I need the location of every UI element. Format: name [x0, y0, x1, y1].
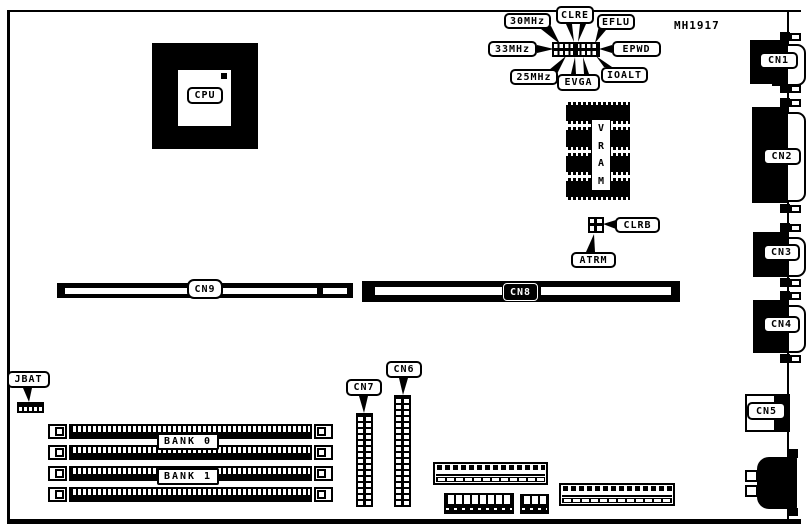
cn3-tab-top-outer — [790, 224, 801, 232]
cn1-tab-top-outer — [790, 33, 801, 41]
io-connector-pins — [562, 486, 672, 497]
connector-label-cn5: CN5 — [747, 402, 786, 420]
pin-header-cn6 — [394, 395, 411, 507]
jumper-label-clrb: CLRB — [615, 217, 660, 233]
simm-clip — [48, 487, 67, 502]
simm-slot-4 — [48, 487, 333, 502]
jbat-jumper-block — [17, 402, 44, 413]
cn3-tab-bottom — [780, 278, 790, 287]
vram-letter: R — [598, 141, 604, 152]
jumper-label-30mhz: 30MHz — [504, 13, 551, 29]
io-connector-pins — [436, 465, 545, 476]
jumper-label-ioalt: IOALT — [601, 67, 648, 83]
io-connector-teeth — [522, 496, 547, 505]
slot-cn9-channel-short — [323, 288, 347, 294]
cn2-tab-top — [780, 98, 790, 107]
simm-clip — [314, 466, 333, 481]
cn3-tab-bottom-outer — [790, 279, 801, 287]
cn3-tab-top — [780, 223, 790, 232]
jumper-label-25mhz: 25MHz — [510, 69, 558, 85]
simm-clip — [48, 424, 67, 439]
io-connector-b — [444, 493, 514, 514]
connector-label-cn3: CN3 — [763, 244, 800, 261]
jumper-label-atrm: ATRM — [571, 252, 616, 268]
jumper-label-jbat: JBAT — [7, 371, 50, 388]
simm-clip — [314, 445, 333, 460]
bank1-label: BANK 1 — [157, 468, 219, 485]
io-connector-bar — [446, 505, 512, 513]
simm-socket — [69, 487, 312, 502]
pin-header-cn7 — [356, 413, 373, 507]
io-connector-sockets — [562, 498, 672, 503]
simm-clip — [48, 445, 67, 460]
simm-clip — [314, 424, 333, 439]
clrb-jumper-block — [588, 217, 604, 233]
cn4-tab-bottom-outer — [790, 355, 801, 363]
header-label-cn6: CN6 — [386, 361, 422, 378]
clock-jumper-block — [552, 42, 600, 57]
slot-label-cn8: CN8 — [503, 283, 538, 301]
board-edge-bottom — [7, 519, 801, 524]
cn2-tab-top-outer — [790, 99, 801, 107]
jumper-label-epwd: EPWD — [612, 41, 661, 57]
jumper-label-clre: CLRE — [556, 6, 594, 24]
jumper-label-eflu: EFLU — [597, 14, 635, 30]
keyboard-connector-tab-1 — [745, 470, 758, 482]
board-edge-left — [7, 10, 10, 524]
vram-label: V R A M — [591, 119, 611, 191]
simm-clip — [48, 466, 67, 481]
keyboard-connector-tab-2 — [745, 485, 758, 497]
cn1-tab-bottom-outer — [790, 85, 801, 93]
part-number: MH1917 — [674, 19, 720, 32]
io-connector-teeth — [446, 495, 512, 505]
jumper-label-evga: EVGA — [557, 74, 600, 91]
cpu-pin1-dot — [221, 73, 227, 79]
simm-clip — [314, 487, 333, 502]
keyboard-connector — [757, 457, 797, 509]
cpu-label: CPU — [187, 87, 223, 104]
cn4-tab-top — [780, 291, 790, 300]
connector-label-cn1: CN1 — [759, 52, 798, 69]
vram-letter: A — [598, 158, 604, 169]
slot-cn8-channel-right — [541, 287, 671, 295]
cn1-tab-bottom — [780, 84, 790, 93]
jumper-label-33mhz: 33MHz — [488, 41, 537, 57]
connector-label-cn2: CN2 — [763, 148, 801, 165]
vram-chip-bank: V R A M — [566, 102, 630, 200]
vram-letter: V — [598, 123, 604, 134]
cn2-tab-bottom — [780, 204, 790, 213]
board-edge-top — [7, 10, 801, 12]
keyboard-connector-step-bottom — [789, 508, 798, 516]
slot-label-cn9: CN9 — [187, 279, 223, 299]
cn4-tab-bottom — [780, 354, 790, 363]
cn4-tab-top-outer — [790, 292, 801, 300]
cn2-tab-bottom-outer — [790, 205, 801, 213]
io-connector-sockets — [436, 477, 545, 482]
vram-letter: M — [598, 176, 604, 187]
connector-label-cn4: CN4 — [763, 316, 800, 333]
cn1-tab-top — [780, 32, 790, 41]
bank0-label: BANK 0 — [157, 433, 219, 450]
io-connector-c — [520, 494, 549, 514]
header-label-cn7: CN7 — [346, 379, 382, 396]
io-connector-bar — [522, 505, 547, 512]
io-connector-a — [433, 462, 548, 485]
motherboard-diagram: MH1917 CPU 30MHz CLRE EFLU 33MHz EPWD 25… — [0, 0, 809, 527]
keyboard-connector-step-top — [789, 449, 798, 458]
slot-cn8-channel-left — [375, 287, 502, 295]
io-connector-d — [559, 483, 675, 506]
